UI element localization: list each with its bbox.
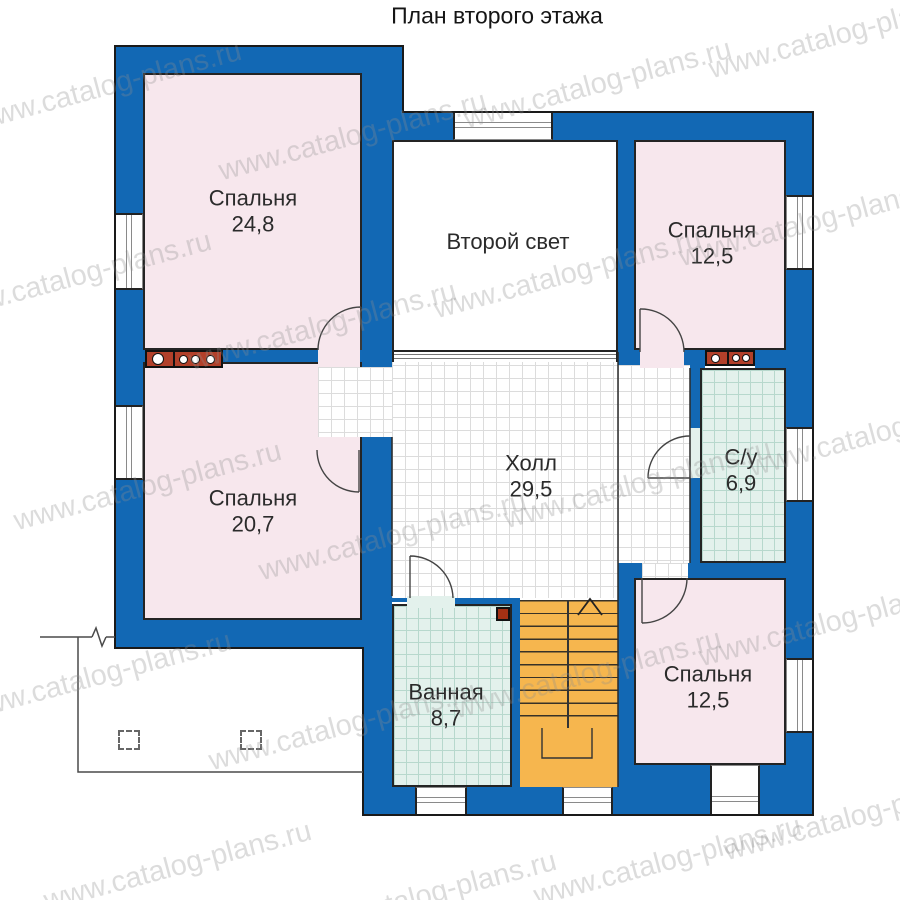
chimney-vent-block [705,350,755,366]
room-name: Второй свет [447,229,570,255]
room-area: 8,7 [408,706,483,732]
terrace-column-mark [240,730,262,750]
vent-divider [173,352,175,366]
wall-segment [618,112,634,352]
door-threshold [690,428,700,478]
wall-segment [360,348,392,367]
room-label-bedroom-3: Спальня 20,7 [209,486,297,539]
window [786,427,813,502]
window [453,112,553,140]
bathroom-vent-square [496,607,510,621]
wall-segment [755,348,786,368]
vent-circle [191,355,200,364]
wall-segment [360,437,392,620]
door-threshold [318,348,360,364]
wall-segment [618,563,635,787]
window [415,787,467,815]
wall-segment [115,46,143,213]
room-hall-east [618,365,690,563]
watermark-text: www.catalog-plans.ru [40,815,315,900]
wall-segment [688,563,786,578]
wall-segment [512,598,520,787]
terrace-outline [40,628,363,772]
stair-divider [567,600,569,728]
room-name: Спальня [209,486,297,512]
wall-segment [690,478,700,563]
chimney-vent-block [145,350,223,368]
wall-segment [786,270,813,427]
watermark-text: www.catalog-plans.ru [530,810,805,900]
watermark-text: www.catalog-plans.ru [285,845,560,900]
room-area: 12,5 [668,244,756,270]
stair-steps [520,600,618,728]
room-name: С/у [725,445,758,471]
room-hall-corridor [318,367,392,437]
door-threshold [642,563,688,578]
second-light-railing [392,352,618,362]
window [786,658,813,733]
window [115,213,143,290]
wall-segment [467,787,562,815]
room-label-bedroom-4: Спальня 12,5 [664,662,752,715]
room-label-second-light: Второй свет [447,229,570,255]
vent-divider [727,352,729,364]
wall-segment [634,765,710,787]
door-threshold [407,596,455,608]
room-area: 12,5 [664,688,752,714]
door-threshold [640,348,684,368]
window [786,195,813,270]
room-name: Спальня [668,218,756,244]
floor-plan: План второго этажа Спальня 24,8 Второй с… [0,0,900,900]
terrace-column-mark [118,730,140,750]
room-name: Спальня [209,186,297,212]
wall-segment [613,787,710,815]
room-name: Холл [505,451,557,477]
vent-circle [742,354,750,362]
wall-segment [760,787,813,815]
room-area: 29,5 [505,477,557,503]
wall-segment [115,480,143,648]
page-title: План второго этажа [391,3,603,30]
window [115,405,143,480]
wall-segment [760,765,786,787]
wall-segment [363,648,392,815]
door-threshold [318,437,360,450]
vent-circle [732,354,740,362]
room-label-bathroom: Ванная 8,7 [408,680,483,733]
room-name: Ванная [408,680,483,706]
wall-segment [690,368,700,428]
vent-circle [206,355,215,364]
room-area: 20,7 [209,512,297,538]
vent-circle [179,355,188,364]
wall-segment [553,112,813,140]
wall-segment [362,140,392,352]
window [710,765,760,815]
room-area: 24,8 [209,212,297,238]
vent-circle [152,353,164,365]
room-name: Спальня [664,662,752,688]
window [562,787,613,815]
room-label-bedroom-1: Спальня 24,8 [209,186,297,239]
room-area: 6,9 [725,471,758,497]
wall-segment [115,290,143,405]
watermark-text: www.catalog-plans.ru [705,0,900,86]
wall-segment [786,502,813,658]
room-label-hall: Холл 29,5 [505,451,557,504]
wall-segment [392,112,453,140]
wall-segment [786,112,813,195]
room-label-bedroom-2: Спальня 12,5 [668,218,756,271]
wall-segment [115,620,392,648]
room-label-wc: С/у 6,9 [725,445,758,498]
wall-segment [115,46,403,73]
vent-circle [711,354,720,363]
